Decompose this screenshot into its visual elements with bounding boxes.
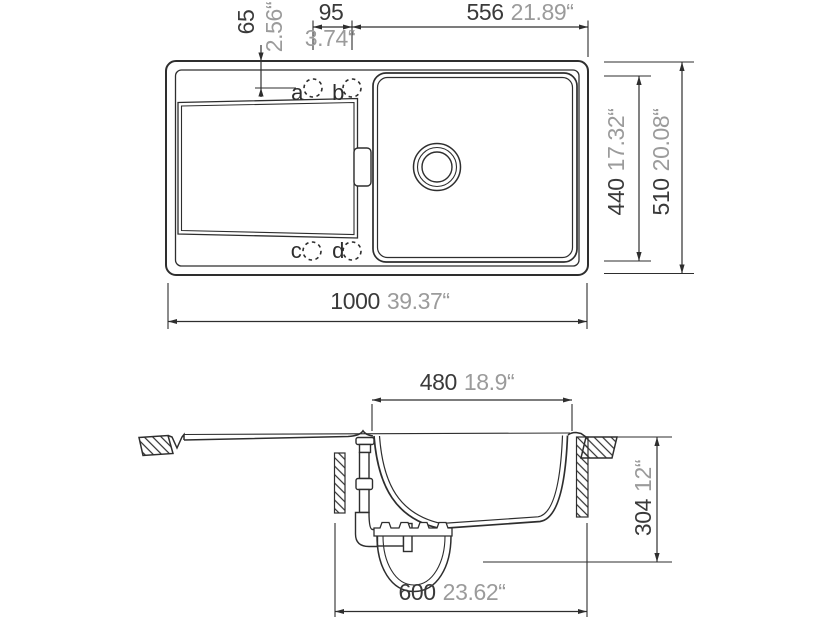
dim-304-label: 30412“ — [630, 460, 656, 536]
dim-1000-arrow-left — [168, 319, 177, 324]
hole-label-c: c — [291, 238, 302, 263]
dim-480-arrow-right — [563, 398, 572, 403]
dim-510-arrow-bottom — [679, 265, 684, 274]
sink-technical-drawing: a b c d 65 2.56“ 95 3.74“ 55621 — [0, 0, 826, 620]
bowl-inner-line — [378, 78, 573, 258]
hole-label-a: a — [291, 80, 304, 105]
bowl-wall-inner — [380, 436, 563, 524]
dim-440-label: 44017.32“ — [603, 108, 629, 215]
dimension-1000: 100039.37“ — [168, 283, 587, 329]
dim-480-extension-lines — [372, 404, 572, 431]
drainboard-inner-line — [182, 103, 355, 235]
drainboard-outline — [178, 99, 358, 239]
plumbing — [356, 438, 453, 592]
dim-600-arrow-right — [578, 609, 587, 614]
dim-65-arrow-top — [258, 53, 263, 62]
dimension-65: 65 2.56“ — [233, 2, 296, 97]
dim-65-arrow-bottom — [258, 88, 263, 97]
cabinet-wall-left — [335, 453, 346, 513]
dim-304-arrow-bottom — [654, 553, 659, 562]
dim-95-mm: 95 — [319, 0, 344, 25]
dim-510-arrow-top — [679, 62, 684, 71]
top-view: a b c d 65 2.56“ 95 3.74“ 55621 — [166, 0, 694, 329]
overflow-pipe-lower — [360, 490, 370, 513]
hole-label-b: b — [332, 80, 344, 105]
dim-304-arrow-top — [654, 437, 659, 446]
dim-510-label: 51020.08“ — [648, 108, 674, 215]
tap-hole-a-icon — [304, 79, 322, 97]
dim-556-label: 55621.89“ — [466, 0, 573, 25]
overflow-cover — [354, 148, 371, 186]
overflow-pipe-upper — [360, 453, 370, 479]
dimension-556: 55621.89“ — [352, 0, 588, 57]
dim-600-label: 60023.62“ — [398, 579, 505, 605]
cabinet-wall-right — [577, 437, 589, 517]
side-view: 48018.9“ 60023.62“ 30412“ — [139, 369, 672, 617]
tap-hole-c-icon — [303, 242, 321, 260]
bowl-outline — [373, 73, 577, 262]
countertop-section-left — [139, 436, 173, 456]
dim-556-arrow-right — [579, 25, 588, 30]
dim-480-label: 48018.9“ — [420, 369, 515, 395]
tap-hole-d-icon — [343, 242, 361, 260]
drain-circle-middle — [418, 148, 457, 187]
pipe-coupling — [356, 479, 373, 490]
dimension-95: 95 3.74“ — [305, 0, 355, 51]
tap-hole-b-icon — [343, 79, 361, 97]
dim-480-arrow-left — [372, 398, 381, 403]
bowl-wall-outer — [374, 436, 568, 529]
dimension-440: 44017.32“ — [603, 76, 651, 261]
hole-label-d: d — [332, 238, 344, 263]
drain-locknut — [374, 523, 452, 537]
overflow-cap — [356, 438, 374, 445]
dimension-480: 48018.9“ — [372, 369, 572, 431]
drain-circle-inner — [422, 152, 452, 182]
dim-440-arrow-bottom — [636, 252, 641, 261]
dim-1000-arrow-right — [578, 319, 587, 324]
dim-1000-label: 100039.37“ — [330, 288, 449, 314]
dim-65-inch: 2.56“ — [261, 2, 287, 52]
overflow-neck — [360, 445, 371, 453]
dim-440-arrow-top — [636, 76, 641, 85]
rim-right-edge — [568, 433, 586, 438]
drain-circle-outer — [414, 144, 461, 191]
dim-95-inch: 3.74“ — [305, 25, 355, 51]
drawing-canvas: a b c d 65 2.56“ 95 3.74“ 55621 — [0, 0, 826, 620]
tap-holes — [303, 79, 361, 260]
dim-600-arrow-left — [335, 609, 344, 614]
dim-65-mm: 65 — [233, 10, 259, 35]
rim-back-edge-line — [184, 433, 570, 435]
drainboard-surface-profile — [184, 431, 373, 440]
